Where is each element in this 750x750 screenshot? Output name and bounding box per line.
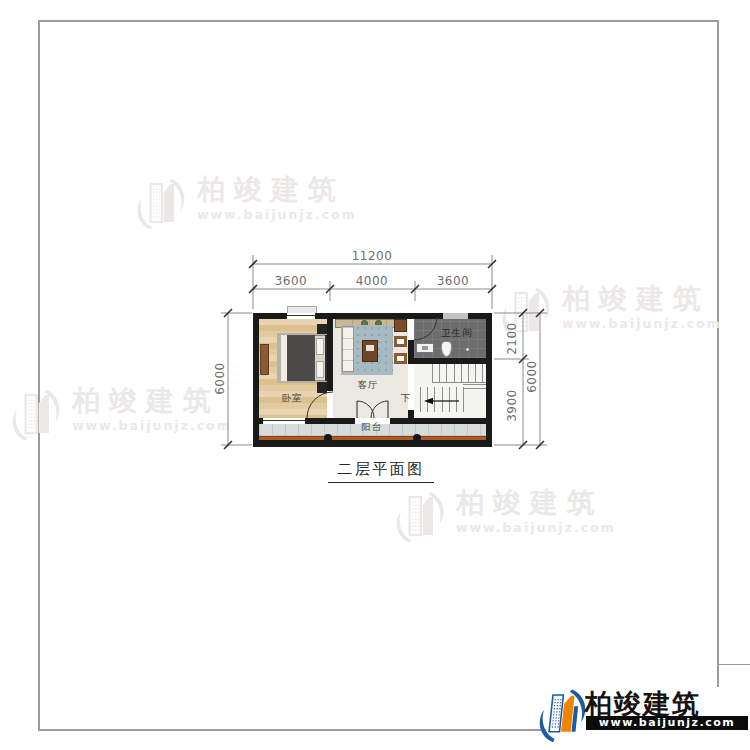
plan-title: 二层平面图 [328, 460, 434, 483]
wall-bedroom-living [327, 313, 333, 391]
floor-drain [465, 347, 470, 352]
balcony-bottom-wall [253, 440, 492, 447]
room-label-bathroom: 卫生间 [433, 327, 481, 340]
coffee-table-tray [366, 345, 374, 351]
room-label-living-room: 客厅 [348, 379, 388, 392]
watermark-url: www.baijunjz.com [197, 207, 357, 222]
brand-watermark-icon [10, 386, 62, 442]
watermark-text: 柏竣建筑 www.baijunjz.com [197, 175, 357, 222]
frame-left-line [38, 20, 40, 730]
bedroom-window [287, 313, 315, 319]
armchair [394, 353, 407, 364]
dim-right-lower: 3900 [505, 378, 518, 434]
bedroom-balcony-window [263, 418, 305, 424]
nightstand [317, 382, 327, 393]
watermark-text: 柏竣建筑 www.baijunjz.com [72, 386, 232, 433]
armchair [394, 336, 407, 347]
watermark-brand: 柏竣建筑 [72, 386, 232, 415]
frame-top-line [38, 20, 719, 22]
stairs-down-label: 下 [399, 392, 413, 405]
watermark: 柏竣建筑 www.baijunjz.com [394, 488, 616, 544]
pillow [316, 338, 324, 355]
logo-url-bar: www.baijunjz.com [586, 716, 748, 730]
dim-top-total: 11200 [332, 249, 412, 263]
bed-blanket [287, 335, 315, 381]
watermark-brand: 柏竣建筑 [562, 284, 722, 313]
watermark-url: www.baijunjz.com [72, 418, 232, 433]
watermark-brand: 柏竣建筑 [197, 175, 357, 204]
bathroom-window [443, 313, 468, 319]
bed-sheet [281, 335, 287, 381]
sofa [342, 326, 354, 372]
watermark-url: www.baijunjz.com [562, 316, 722, 331]
dim-right-upper: 2100 [505, 311, 518, 367]
pillow [316, 361, 324, 378]
dim-right-total: 6000 [525, 349, 538, 405]
frame-right-line [717, 20, 719, 687]
sink-faucet [422, 346, 428, 350]
brand-logo-icon [537, 684, 585, 746]
exterior-wall-left [253, 313, 259, 447]
room-label-bedroom: 卧室 [272, 392, 312, 405]
cabinet [394, 319, 407, 332]
wardrobe [260, 344, 269, 375]
stairs-lower-flight [420, 387, 464, 412]
watermark-text: 柏竣建筑 www.baijunjz.com [456, 488, 616, 535]
watermark-brand: 柏竣建筑 [456, 488, 616, 517]
stairs-landing [463, 382, 486, 389]
room-label-balcony: 阳台 [352, 421, 392, 434]
brand-watermark-icon [394, 488, 446, 544]
wall-post-stairs [408, 410, 414, 418]
watermark: 柏竣建筑 www.baijunjz.com [135, 175, 357, 231]
exterior-wall-right [486, 313, 492, 447]
dim-top-seg-1: 3600 [256, 274, 326, 288]
watermark-url: www.baijunjz.com [456, 520, 616, 535]
watermark: 柏竣建筑 www.baijunjz.com [10, 386, 232, 442]
wall-living-bathroom [408, 313, 414, 317]
frame-bottom-line [38, 729, 546, 731]
watermark: 柏竣建筑 www.baijunjz.com [500, 284, 722, 340]
watermark-text: 柏竣建筑 www.baijunjz.com [562, 284, 722, 331]
frame-stub-line [719, 664, 750, 665]
coffee-table [362, 340, 378, 362]
brand-watermark-icon [135, 175, 187, 231]
dim-top-seg-3: 3600 [418, 274, 488, 288]
dim-left-total: 6000 [213, 351, 226, 407]
dim-top-seg-2: 4000 [337, 274, 407, 288]
stairs-upper-flight [432, 364, 486, 383]
nightstand [317, 324, 327, 334]
bed-headboard [325, 335, 327, 381]
